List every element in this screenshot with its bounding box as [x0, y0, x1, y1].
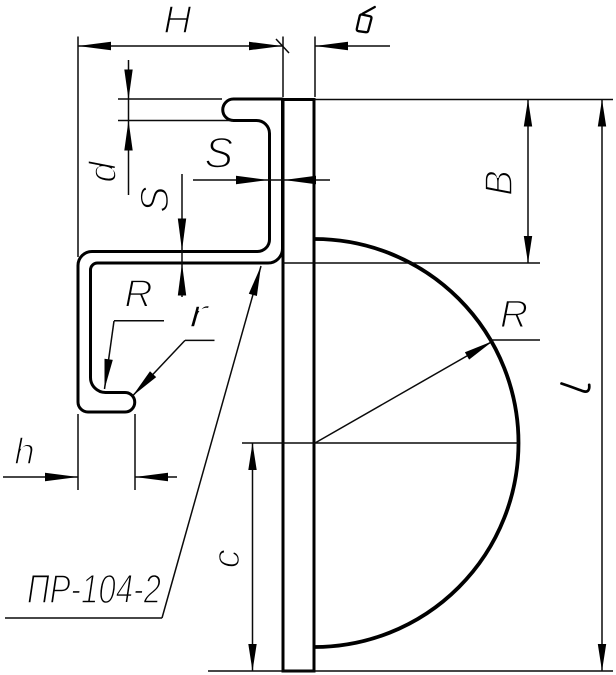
svg-text:R: R [500, 293, 528, 336]
svg-text:H: H [163, 0, 192, 42]
svg-text:r: r [189, 292, 210, 336]
svg-text:d: d [83, 160, 125, 183]
svg-text:c: c [206, 549, 248, 568]
svg-text:ПР-104-2: ПР-104-2 [27, 566, 161, 612]
svg-text:h: h [14, 431, 35, 472]
svg-text:B: B [478, 170, 521, 196]
svg-text:S: S [133, 186, 177, 213]
svg-text:R: R [124, 273, 152, 316]
svg-text:S: S [204, 130, 233, 178]
